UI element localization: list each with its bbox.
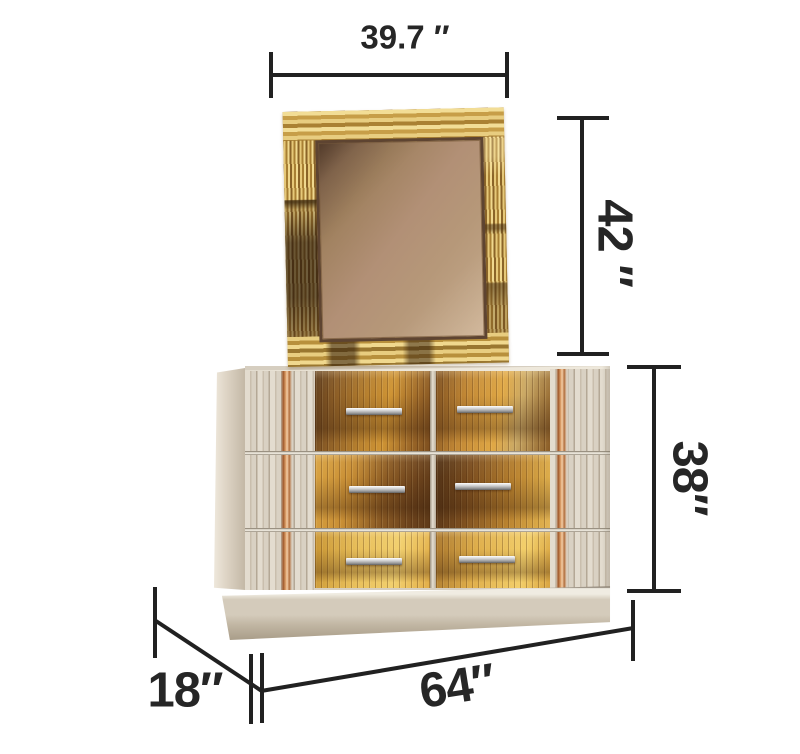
drawer-divider bbox=[430, 371, 436, 588]
drawer-handle-bottom-left bbox=[346, 558, 402, 565]
mirror-height-label: 42 ″ bbox=[590, 199, 639, 287]
dim-cap bbox=[249, 654, 253, 724]
mirror-width-label: 39.7 ″ bbox=[360, 21, 449, 54]
drawer-handle-bottom-right bbox=[459, 556, 515, 563]
mirror-glass bbox=[315, 137, 487, 342]
dim-line bbox=[269, 73, 509, 77]
drawer-separator-2 bbox=[245, 528, 610, 532]
drawer-handle-middle-left bbox=[349, 486, 405, 493]
dresser-front bbox=[245, 366, 610, 590]
dresser-plinth bbox=[216, 584, 612, 640]
mirror-frame-left-band bbox=[283, 140, 319, 337]
mirror bbox=[283, 107, 509, 367]
drawer-middle-right bbox=[436, 455, 550, 528]
dim-cap bbox=[631, 600, 635, 661]
fluted-column-right bbox=[550, 369, 610, 590]
copper-stripe-right bbox=[556, 369, 567, 590]
dresser-height-label: 38″ bbox=[665, 441, 714, 516]
dresser-side-panel bbox=[212, 368, 245, 590]
copper-stripe-left bbox=[281, 371, 292, 590]
fluted-column-left bbox=[245, 371, 315, 590]
drawer-handle-middle-right bbox=[455, 483, 511, 490]
drawer-handle-top-left bbox=[346, 408, 402, 415]
canvas: 39.7 ″ 42 ″ 38″ 64″ 18″ bbox=[0, 0, 800, 754]
dresser-depth-label: 18″ bbox=[148, 667, 223, 716]
dim-line bbox=[652, 365, 656, 593]
dim-line bbox=[580, 116, 584, 356]
drawer-handle-top-right bbox=[457, 406, 513, 413]
drawer-separator-1 bbox=[245, 451, 610, 455]
dresser-width-label: 64″ bbox=[416, 657, 498, 717]
